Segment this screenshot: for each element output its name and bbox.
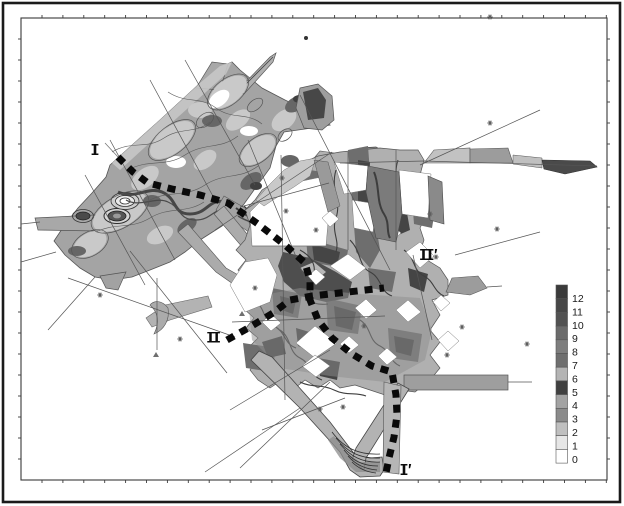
svg-text:2: 2 [572, 427, 578, 439]
svg-text:0: 0 [572, 454, 578, 466]
svg-text:11: 11 [572, 306, 583, 318]
svg-text:3: 3 [572, 414, 578, 426]
svg-text:7: 7 [572, 360, 578, 372]
svg-text:4: 4 [572, 400, 578, 412]
svg-text:5: 5 [572, 387, 578, 399]
svg-text:12: 12 [572, 293, 584, 305]
svg-text:6: 6 [572, 373, 578, 385]
svg-text:10: 10 [572, 320, 584, 332]
svg-text:8: 8 [572, 347, 578, 359]
svg-text:9: 9 [572, 333, 578, 345]
svg-text:1: 1 [572, 440, 578, 452]
